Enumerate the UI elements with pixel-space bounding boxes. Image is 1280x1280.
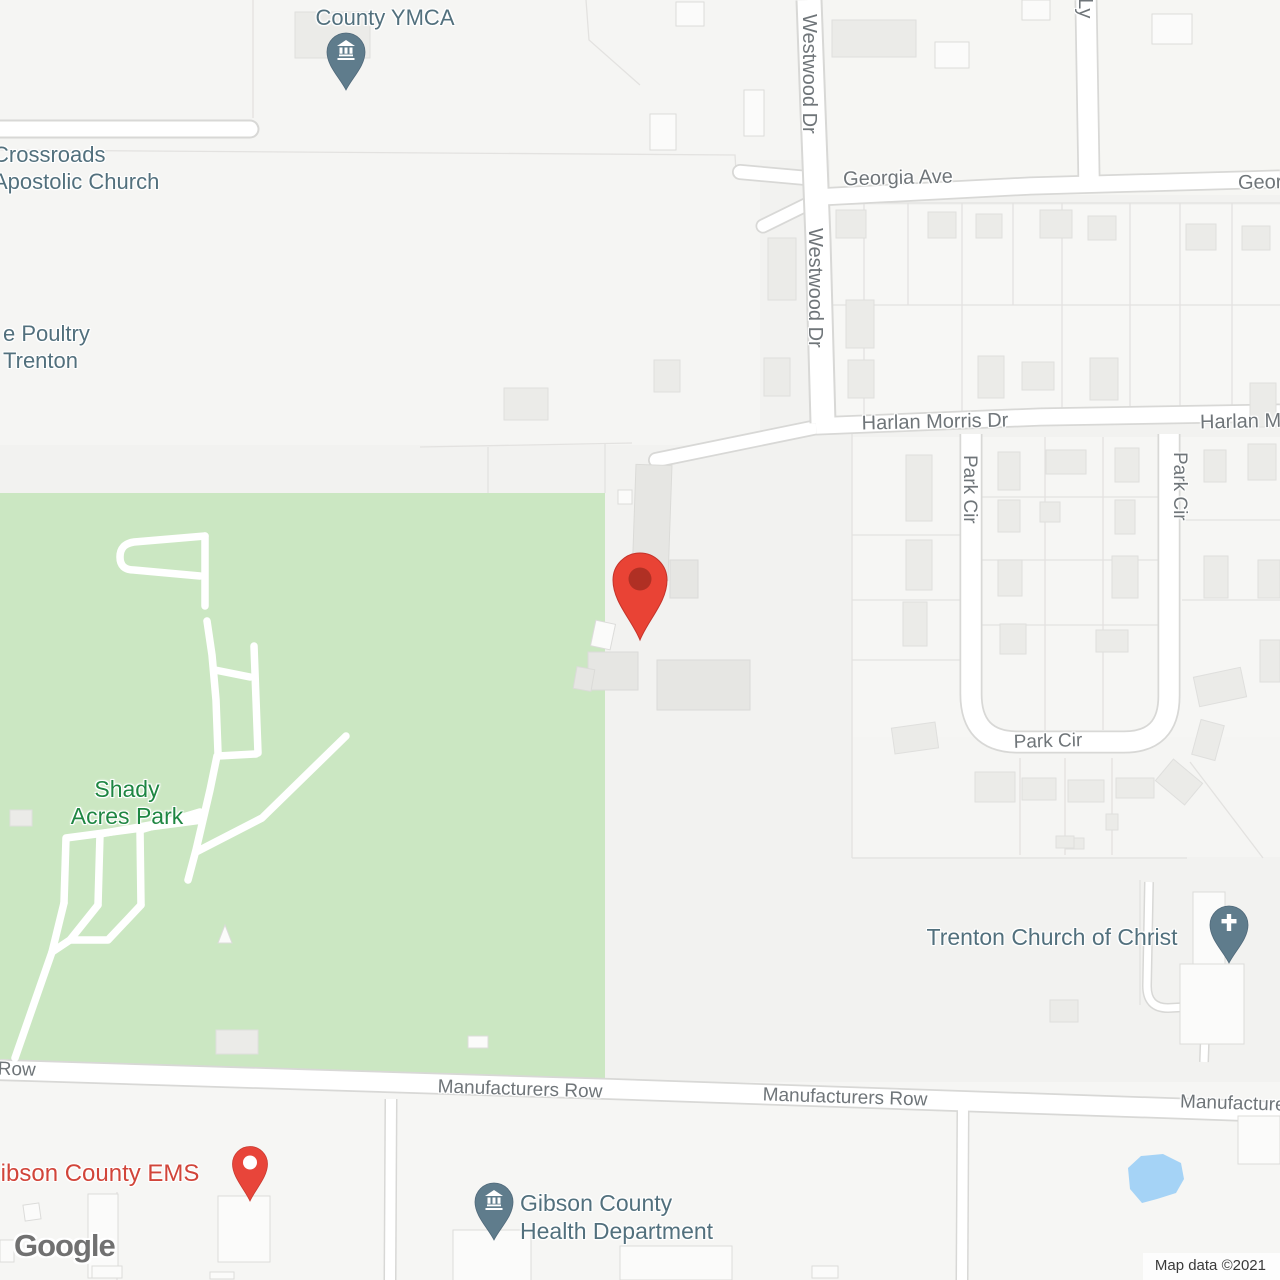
label-line: Crossroads	[0, 141, 159, 168]
label-crossroads-apostolic-church[interactable]: Crossroads Apostolic Church	[0, 141, 159, 195]
label-poultry-trenton[interactable]: e Poultry Trenton	[3, 320, 90, 374]
label-line: Health Department	[520, 1217, 713, 1245]
label-line: Apostolic Church	[0, 168, 159, 195]
map-canvas[interactable]: County YMCA Crossroads Apostolic Church …	[0, 0, 1280, 1280]
map-attribution[interactable]: Map data ©2021	[1143, 1253, 1280, 1280]
street-label-harlan-morris-dr: Harlan Morris Dr	[861, 409, 1008, 435]
label-line: Gibson County	[520, 1189, 713, 1217]
map-graphics	[0, 0, 1280, 1280]
street-label-westwood-dr-south: Westwood Dr	[803, 228, 826, 348]
label-trenton-church-of-christ[interactable]: Trenton Church of Christ	[927, 924, 1178, 951]
circle-marker-icon	[243, 1156, 257, 1170]
street-label-park-cir-west: Park Cir	[958, 455, 980, 524]
destination-pin[interactable]	[613, 553, 667, 640]
street-label-harlan-morris-dr-clipped: Harlan Morris Dr	[1200, 408, 1280, 434]
label-gibson-county-ems[interactable]: Gibson County EMS	[0, 1160, 199, 1188]
label-line: Acres Park	[71, 803, 183, 830]
street-label-park-cir-east: Park Cir	[1168, 452, 1190, 521]
label-line: Shady	[71, 776, 183, 803]
google-watermark: Google	[14, 1228, 115, 1264]
street-label-georgia-ave: Georgia Ave	[843, 166, 953, 192]
street-label-georgia-ave-clipped: Georgia Ave	[1238, 170, 1280, 195]
label-line: e Poultry	[3, 320, 90, 347]
street-label-ly: Ly	[1073, 0, 1096, 18]
label-line: Trenton	[3, 347, 90, 374]
label-county-ymca[interactable]: County YMCA	[316, 4, 455, 31]
street-label-park-cir-south: Park Cir	[1013, 730, 1082, 754]
street-label-westwood-dr-north: Westwood Dr	[797, 14, 820, 134]
label-shady-acres-park[interactable]: Shady Acres Park	[71, 776, 183, 830]
label-gibson-county-health-department[interactable]: Gibson County Health Department	[520, 1189, 713, 1245]
